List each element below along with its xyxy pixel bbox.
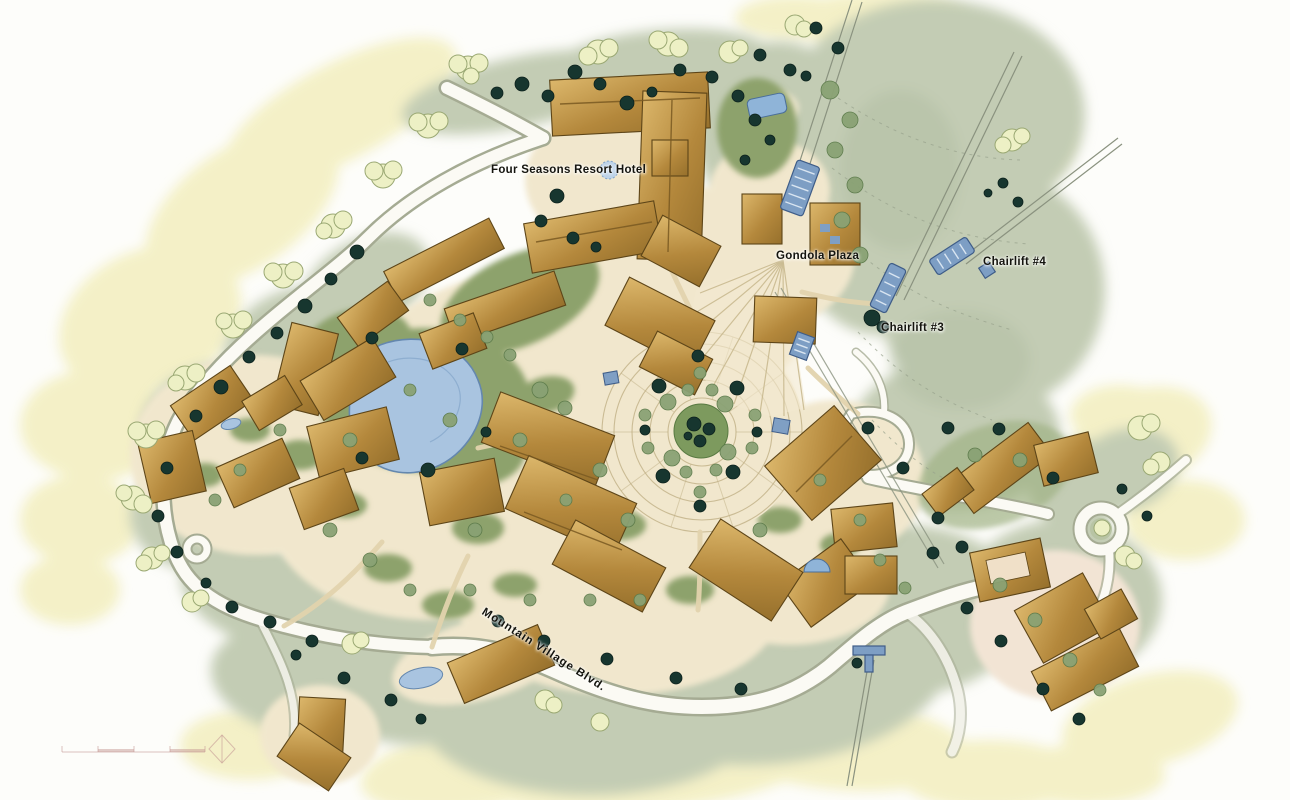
resort-site-plan-map: Four Seasons Resort Hotel Gondola Plaza … <box>0 0 1290 800</box>
map-illustration <box>0 0 1290 800</box>
label-four-seasons-resort-hotel: Four Seasons Resort Hotel <box>491 164 646 176</box>
label-chairlift-3: Chairlift #3 <box>881 322 944 334</box>
label-chairlift-4: Chairlift #4 <box>983 256 1046 268</box>
label-gondola-plaza: Gondola Plaza <box>776 250 859 262</box>
